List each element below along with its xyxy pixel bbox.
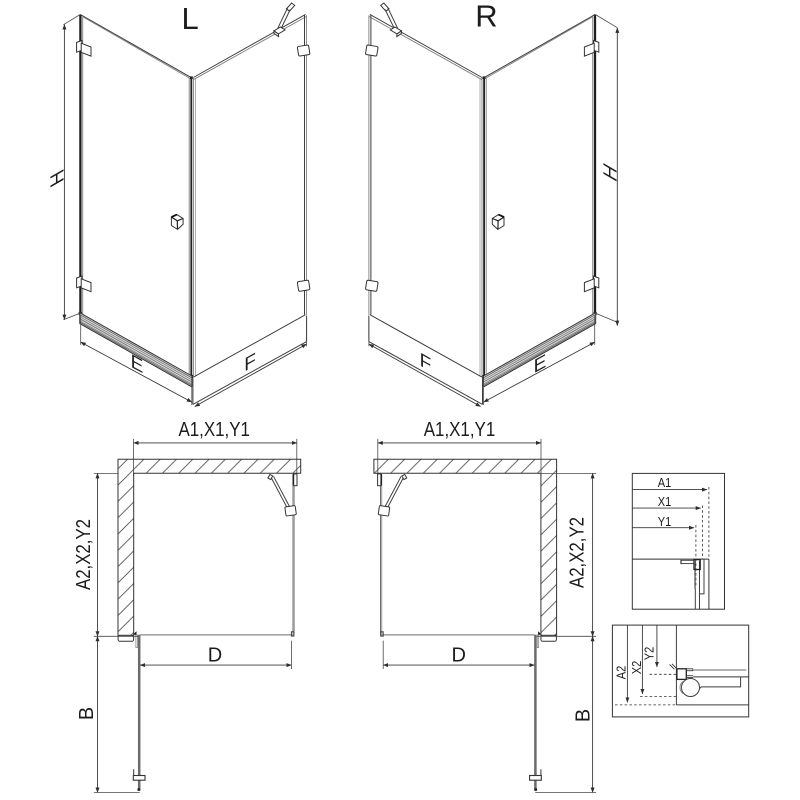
svg-text:A1: A1	[658, 475, 672, 490]
svg-text:X2: X2	[629, 661, 644, 675]
svg-text:A1,X1,Y1: A1,X1,Y1	[424, 419, 496, 441]
svg-text:D: D	[451, 645, 465, 667]
svg-text:A2: A2	[614, 666, 629, 680]
svg-text:F: F	[420, 349, 432, 376]
svg-text:R: R	[475, 0, 497, 34]
svg-text:H: H	[47, 165, 68, 191]
svg-text:B: B	[573, 709, 595, 722]
svg-text:A2,X2,Y2: A2,X2,Y2	[566, 517, 588, 588]
svg-text:H: H	[600, 160, 621, 186]
svg-text:A2,X2,Y2: A2,X2,Y2	[73, 519, 95, 590]
svg-text:B: B	[76, 707, 98, 720]
svg-text:X1: X1	[658, 494, 672, 509]
svg-text:D: D	[208, 645, 222, 667]
svg-text:Y1: Y1	[658, 514, 672, 529]
svg-text:A1,X1,Y1: A1,X1,Y1	[178, 419, 250, 441]
svg-text:L: L	[182, 1, 199, 36]
svg-text:F: F	[244, 349, 256, 376]
svg-text:Y2: Y2	[642, 647, 657, 661]
